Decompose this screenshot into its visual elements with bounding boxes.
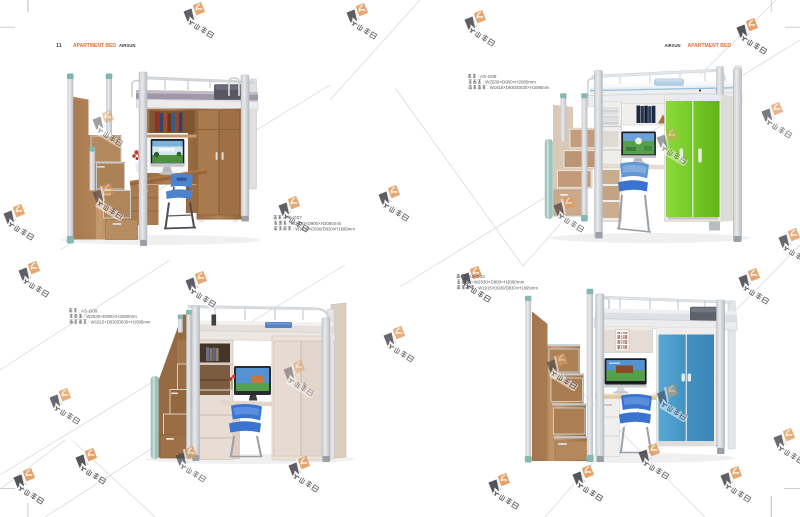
svg-text:: W2530×D900×H2080mm: : W2530×D900×H2080mm: [483, 80, 536, 86]
svg-text:: W2530×D900×H2080mm: : W2530×D900×H2080mm: [288, 221, 341, 227]
svg-text:APARTMENT BED: APARTMENT BED: [688, 43, 732, 49]
svg-text:: W1915×D930/D830×H1695mm: : W1915×D930/D830×H1695mm: [476, 285, 538, 291]
svg-text:: W2530×D900×H2080mm: : W2530×D900×H2080mm: [84, 314, 137, 320]
svg-text:: AS-G09: : AS-G09: [79, 308, 98, 314]
svg-text:: W1915×D930/D830×H1695mm: : W1915×D930/D830×H1695mm: [293, 226, 355, 232]
svg-text:APARTMENT BED: APARTMENT BED: [73, 43, 116, 49]
svg-text:: W1915×D930/D830×H1695mm: : W1915×D930/D830×H1695mm: [487, 85, 549, 91]
svg-text:AIRSUN: AIRSUN: [665, 43, 682, 48]
svg-text:: W1915×D930/D830×H1695mm: : W1915×D930/D830×H1695mm: [88, 320, 150, 326]
svg-text:: AS-G07: : AS-G07: [283, 215, 302, 221]
svg-text:11: 11: [56, 43, 62, 49]
svg-text:: AS-G10: : AS-G10: [466, 274, 485, 280]
svg-text:: AS-G08: : AS-G08: [478, 74, 497, 80]
svg-text:AIRSUN: AIRSUN: [119, 43, 136, 48]
svg-text:: W2530×D900×H2080mm: : W2530×D900×H2080mm: [471, 280, 524, 286]
